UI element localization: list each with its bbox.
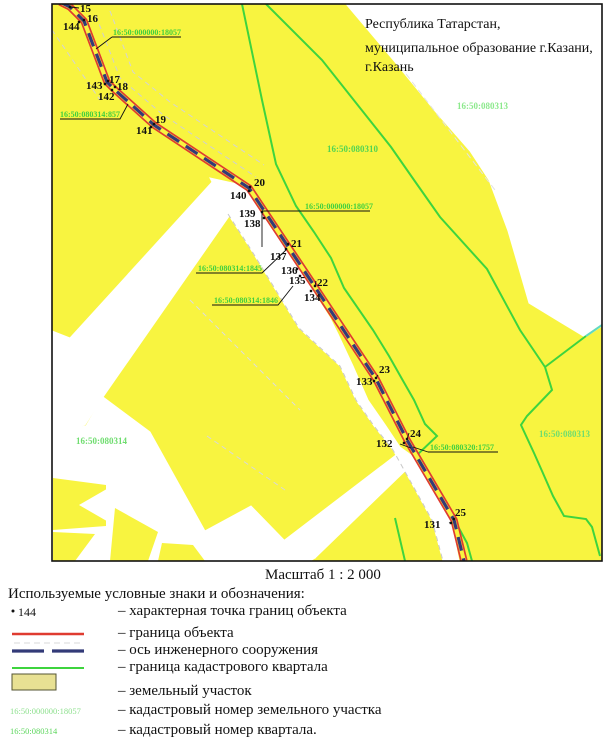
svg-text:16:50:080313: 16:50:080313 (539, 429, 590, 439)
svg-text:16:50:080314:857: 16:50:080314:857 (60, 110, 120, 119)
svg-text:19: 19 (155, 114, 167, 126)
svg-text:16:50:080320:1757: 16:50:080320:1757 (430, 443, 494, 452)
svg-text:16:50:080310: 16:50:080310 (327, 144, 378, 154)
svg-text:16:50:080314:1846: 16:50:080314:1846 (214, 296, 278, 305)
svg-text:138: 138 (244, 218, 261, 230)
svg-text:Используемые условные знаки и: Используемые условные знаки и обозначени… (8, 586, 305, 602)
svg-text:Масштаб 1 : 2 000: Масштаб 1 : 2 000 (265, 567, 381, 583)
svg-text:144: 144 (63, 21, 80, 33)
svg-text:– кадастровый номер квартала.: – кадастровый номер квартала. (117, 722, 317, 738)
svg-text:20: 20 (254, 177, 266, 189)
svg-text:16:50:080313: 16:50:080313 (457, 101, 508, 111)
svg-text:16:50:080314: 16:50:080314 (76, 436, 127, 446)
svg-text:– граница объекта: – граница объекта (117, 625, 234, 641)
svg-text:– граница кадастрового квартал: – граница кадастрового квартала (117, 659, 328, 675)
svg-text:142: 142 (98, 91, 115, 103)
svg-text:25: 25 (455, 507, 467, 519)
svg-text:24: 24 (410, 428, 422, 440)
svg-text:132: 132 (376, 438, 393, 450)
svg-text:144: 144 (18, 605, 36, 619)
svg-text:18: 18 (117, 81, 129, 93)
svg-text:– земельный участок: – земельный участок (117, 683, 252, 699)
svg-text:16:50:000000:18057: 16:50:000000:18057 (305, 202, 373, 211)
svg-text:– характерная точка границ объ: – характерная точка границ объекта (117, 603, 347, 619)
svg-text:134: 134 (304, 292, 321, 304)
svg-text:16:50:000000:18057: 16:50:000000:18057 (10, 706, 81, 716)
svg-text:141: 141 (136, 125, 153, 137)
svg-text:135: 135 (289, 275, 306, 287)
svg-text:133: 133 (356, 376, 373, 388)
svg-text:23: 23 (379, 364, 391, 376)
svg-text:16:50:080314:1845: 16:50:080314:1845 (198, 264, 262, 273)
svg-text:22: 22 (317, 277, 329, 289)
svg-text:140: 140 (230, 190, 247, 202)
svg-text:муниципальное образование г.Ка: муниципальное образование г.Казани, (365, 41, 593, 56)
svg-text:– кадастровый номер земельного: – кадастровый номер земельного участка (117, 702, 382, 718)
svg-text:Республика Татарстан,: Республика Татарстан, (365, 17, 501, 32)
svg-text:г.Казань: г.Казань (365, 60, 414, 75)
svg-text:16:50:000000:18057: 16:50:000000:18057 (113, 28, 181, 37)
svg-text:16:50:080314: 16:50:080314 (10, 726, 58, 736)
svg-text:– ось инженерного сооружения: – ось инженерного сооружения (117, 642, 318, 658)
svg-text:21: 21 (291, 238, 302, 250)
svg-text:131: 131 (424, 519, 441, 531)
svg-text:16: 16 (87, 13, 99, 25)
